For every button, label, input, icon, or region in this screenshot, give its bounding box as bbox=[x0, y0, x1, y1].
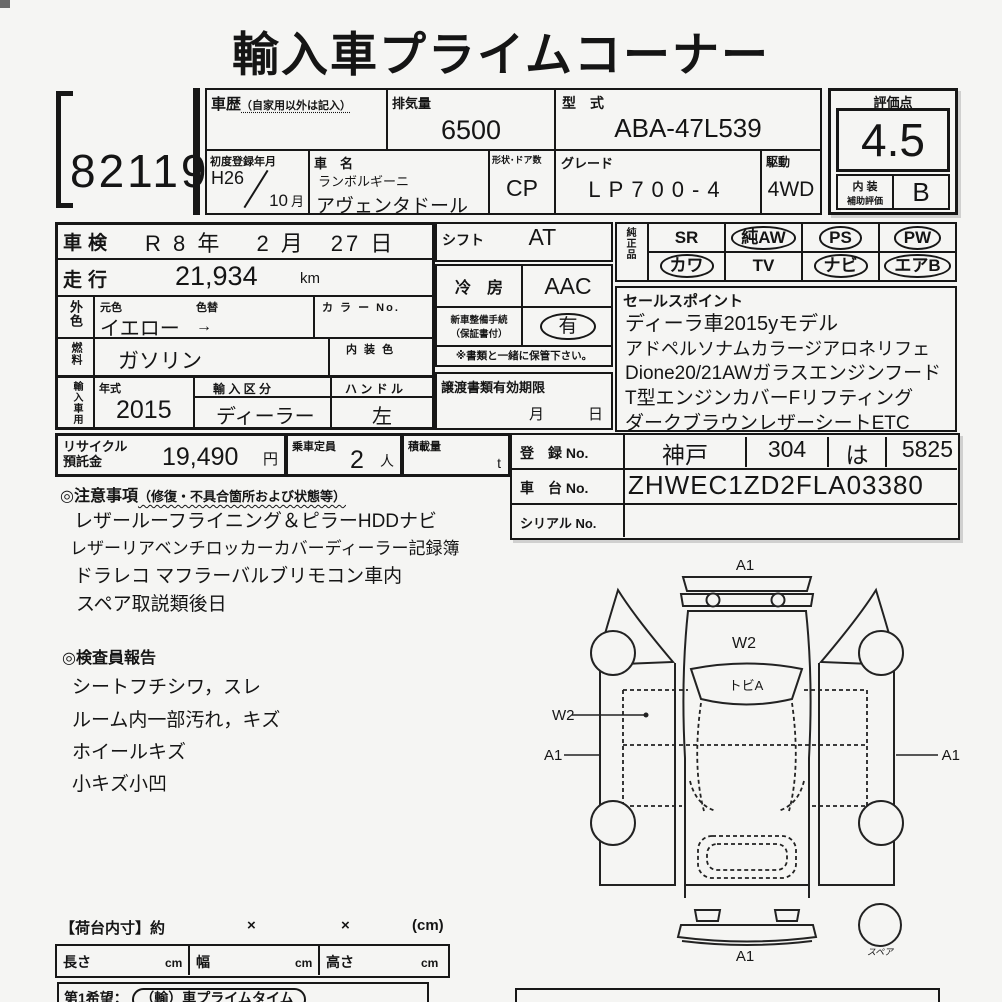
import-label: 輸入車用 bbox=[69, 381, 84, 427]
chassis-no-label: 車 台 No. bbox=[520, 478, 620, 498]
drive-cell: 駆動 4WD bbox=[760, 149, 822, 215]
equip-item: カワ bbox=[649, 252, 724, 280]
ext-color-label: 外色 bbox=[66, 300, 85, 338]
equip-item: PS bbox=[801, 224, 878, 252]
cargo-height-label: 高さ bbox=[326, 952, 354, 972]
sales-points-label: セールスポイント bbox=[623, 290, 955, 311]
diagram-windshield-label: トビA bbox=[729, 678, 764, 693]
fuel-value: ガソリン bbox=[118, 345, 202, 375]
cargo-width-label: 幅 bbox=[196, 952, 210, 972]
history-label: 車歴 bbox=[211, 93, 241, 114]
reg-kana: は bbox=[829, 436, 885, 470]
oem-parts-label: 純正品 bbox=[622, 227, 637, 279]
recycle-unit: 円 bbox=[263, 448, 278, 469]
equip-item: TV bbox=[724, 252, 801, 280]
load-unit: t bbox=[497, 455, 501, 471]
lot-bracket bbox=[56, 91, 61, 208]
shift-box: シフト AT bbox=[435, 222, 613, 262]
load-box: 積載量 t bbox=[401, 433, 511, 477]
reg-no-label: 登 録 No. bbox=[520, 443, 620, 463]
car-name-cell: 車 名 ランボルギーニ アヴェンタドール bbox=[308, 149, 490, 215]
label-underline bbox=[195, 396, 330, 398]
equip-row-2: カワ TV ナビ エアB bbox=[649, 252, 955, 280]
col-divider bbox=[93, 375, 95, 428]
mileage-value: 21,934 bbox=[175, 261, 258, 292]
rating-box: 評価点 4.5 内 装 補助評価 B bbox=[828, 88, 958, 215]
notes-title: ◎注意事項（修復・不具合箇所および状態等） bbox=[60, 482, 346, 506]
cargo-length-unit: cm bbox=[165, 956, 182, 970]
year-label: 年式 bbox=[99, 380, 121, 396]
registration-table: 登 録 No. 神戸 304 は 5825 車 台 No. ZHWEC1ZD2F… bbox=[510, 433, 960, 540]
lot-bracket-bottom-foot bbox=[56, 203, 73, 208]
ac-newcar-block: 冷 房 AAC 新車整備手続 （保証書付） 有 ※書類と一緒に保管下さい。 bbox=[435, 264, 613, 367]
inspector-line: 小キズ小凹 bbox=[72, 769, 167, 796]
lot-number: 82119 bbox=[70, 144, 210, 198]
inspector-line: ホイールキズ bbox=[72, 737, 186, 764]
fuel-label: 燃料 bbox=[68, 342, 84, 376]
note-line: ドラレコ マフラーバルブリモコン車内 bbox=[74, 561, 402, 588]
row-divider bbox=[57, 375, 433, 378]
diagram-left-side-label: A1 bbox=[544, 747, 562, 764]
footer-wish-box: 第1希望： （輸）車プライムタイム bbox=[57, 982, 429, 1002]
cargo-width-unit: cm bbox=[295, 956, 312, 970]
inspector-line: ルーム内一部汚れ，キズ bbox=[72, 705, 280, 732]
mileage-label: 走行 bbox=[63, 265, 113, 292]
newcar-label-box: 新車整備手続 （保証書付） bbox=[437, 308, 523, 345]
transfer-box: 譲渡書類有効期限 月 日 bbox=[435, 372, 613, 430]
transfer-month: 月 bbox=[529, 403, 544, 424]
inspector-line: シートフチシワ，スレ bbox=[72, 672, 261, 699]
newcar-value-box: 有 bbox=[525, 308, 611, 345]
history-cell: 車歴（自家用以外は記入） bbox=[205, 88, 388, 151]
color-change-label: 色替 bbox=[196, 299, 218, 315]
first-reg-cell: 初度登録年月 H26 10 月 bbox=[205, 149, 310, 215]
newcar-value: 有 bbox=[540, 313, 595, 341]
grade-value: LP700-4 bbox=[556, 177, 760, 203]
chassis-no-value: ZHWEC1ZD2FLA03380 bbox=[628, 470, 924, 501]
auction-sheet: 輸入車プライムコーナー 82119 車歴（自家用以外は記入） 排気量 6500 … bbox=[0, 0, 1002, 1002]
shift-label: シフト bbox=[442, 230, 484, 250]
col-divider bbox=[93, 337, 95, 377]
inspector-title: ◎検査員報告 bbox=[62, 644, 156, 668]
interior-color-label: 内 装 色 bbox=[346, 341, 395, 357]
load-label: 積載量 bbox=[408, 438, 508, 454]
keep-with-docs-note: ※書類と一緒に保管下さい。 bbox=[437, 348, 611, 363]
ac-value: AAC bbox=[525, 266, 611, 306]
recycle-box: リサイクル 預託金 19,490 円 bbox=[55, 433, 287, 477]
ac-label: 冷 房 bbox=[437, 266, 523, 306]
row-divider bbox=[57, 295, 433, 297]
sales-point-line: Dione20/21AWガラスエンジンフード bbox=[625, 362, 955, 386]
history-note: （自家用以外は記入） bbox=[241, 100, 351, 112]
grade-label: グレード bbox=[561, 153, 760, 172]
import-type-value: ディーラー bbox=[216, 400, 315, 429]
handle-value: 左 bbox=[372, 400, 392, 429]
drive-label: 駆動 bbox=[766, 153, 820, 170]
grade-cell: グレード LP700-4 bbox=[554, 149, 762, 215]
equip-row-1: SR 純AW PS PW bbox=[649, 224, 955, 252]
label-underline bbox=[332, 396, 433, 398]
footer-right-box bbox=[515, 988, 940, 1002]
newcar-label-1: 新車整備手続 bbox=[437, 312, 521, 326]
lot-bracket-top-foot bbox=[56, 91, 73, 96]
recycle-value: 19,490 bbox=[162, 443, 238, 472]
lot-divider-bar bbox=[193, 88, 200, 215]
sales-point-line: アドペルソナムカラージアロネリフェ bbox=[625, 337, 955, 361]
diagram-left-door-label: W2 bbox=[552, 707, 575, 724]
equip-item: ナビ bbox=[801, 252, 878, 280]
cargo-x1: × bbox=[247, 917, 256, 934]
car-damage-diagram: A1 W2 トビA A1 bbox=[530, 553, 1002, 973]
diagram-spare-label: スペア bbox=[867, 947, 894, 957]
handle-label: ハ ン ド ル bbox=[345, 380, 403, 397]
first-reg-label: 初度登録年月 bbox=[210, 153, 308, 169]
col-divider bbox=[328, 337, 330, 377]
cargo-length-label: 長さ bbox=[63, 952, 91, 972]
displacement-cell: 排気量 6500 bbox=[386, 88, 556, 151]
col-divider bbox=[193, 375, 195, 428]
notes-title-sub: （修復・不具合箇所および状態等） bbox=[138, 489, 346, 504]
model-code-cell: 型 式 ABA-47L539 bbox=[554, 88, 822, 151]
col-divider bbox=[313, 295, 315, 339]
cargo-title: 【荷台内寸】約 bbox=[60, 917, 165, 938]
color-no-label: カ ラ ー No. bbox=[322, 299, 400, 315]
capacity-box: 乗車定員 2 人 bbox=[285, 433, 403, 477]
notes-title-main: ◎注意事項 bbox=[60, 488, 138, 505]
sales-point-line: T型エンジンカバーFリフティング bbox=[625, 387, 955, 411]
footer-wish-value: （輸）車プライムタイム bbox=[132, 988, 305, 1002]
shift-value: AT bbox=[528, 224, 556, 250]
maker-name: ランボルギーニ bbox=[318, 171, 488, 190]
car-name-value: アヴェンタドール bbox=[316, 191, 488, 218]
note-line: レザーリアベンチロッカーカバーディーラー記録簿 bbox=[70, 534, 459, 559]
first-reg-year: H26 bbox=[211, 168, 244, 189]
page-title: 輸入車プライムコーナー bbox=[0, 16, 1002, 85]
interior-label-bottom: 補助評価 bbox=[838, 194, 892, 207]
cargo-table: 長さ cm 幅 cm 高さ cm bbox=[55, 944, 450, 978]
color-arrow: → bbox=[196, 318, 212, 336]
year-value: 2015 bbox=[116, 396, 172, 425]
rating-score: 4.5 bbox=[836, 108, 950, 172]
body-shape-cell: 形状･ドア数 CP bbox=[488, 149, 556, 215]
oem-parts-box: 純正品 SR 純AW PS PW カワ TV ナビ エアB bbox=[615, 222, 957, 282]
model-code-value: ABA-47L539 bbox=[556, 113, 820, 144]
equip-item: PW bbox=[878, 224, 955, 252]
car-name-label: 車 名 bbox=[314, 153, 488, 172]
body-shape-label: 形状･ドア数 bbox=[492, 153, 554, 166]
diagram-hood-label: W2 bbox=[732, 635, 756, 652]
drive-value: 4WD bbox=[762, 178, 820, 202]
col-divider bbox=[188, 946, 190, 975]
equip-item: エアB bbox=[878, 252, 955, 280]
displacement-label: 排気量 bbox=[392, 93, 431, 112]
capacity-unit: 人 bbox=[380, 451, 394, 471]
interior-label-top: 内 装 bbox=[838, 178, 892, 194]
row-divider bbox=[57, 337, 433, 339]
scan-corner-mark bbox=[0, 0, 10, 8]
transfer-label: 譲渡書類有効期限 bbox=[441, 377, 611, 396]
serial-no-label: シリアル No. bbox=[520, 513, 620, 532]
cargo-height-unit: cm bbox=[421, 956, 438, 970]
equip-item: SR bbox=[649, 224, 724, 252]
diagram-front-label: A1 bbox=[736, 557, 754, 574]
diagram-rear-label: A1 bbox=[736, 948, 754, 965]
body-shape-value: CP bbox=[490, 175, 554, 202]
note-line: スペア取説類後日 bbox=[76, 589, 227, 616]
first-reg-month-suffix: 月 bbox=[291, 191, 304, 210]
newcar-label-2: （保証書付） bbox=[437, 326, 521, 340]
diagram-right-side-label: A1 bbox=[942, 747, 960, 764]
shaken-label: 車検 bbox=[63, 228, 113, 255]
row-divider bbox=[57, 258, 433, 260]
transfer-day: 日 bbox=[588, 403, 603, 424]
row-divider bbox=[437, 345, 611, 347]
col-divider bbox=[93, 295, 95, 339]
col-divider bbox=[318, 946, 320, 975]
reg-area: 神戸 bbox=[625, 436, 745, 470]
first-reg-slash bbox=[243, 170, 268, 208]
sales-point-line: ディーラ車2015yモデル bbox=[625, 312, 955, 336]
model-code-label: 型 式 bbox=[562, 93, 604, 113]
interior-rating-label-box: 内 装 補助評価 bbox=[836, 174, 894, 210]
import-type-label: 輸 入 区 分 bbox=[213, 380, 271, 397]
reg-number: 5825 bbox=[887, 436, 953, 463]
note-line: レザールーフライニング＆ピラーHDDナビ bbox=[74, 506, 437, 533]
reg-class: 304 bbox=[747, 436, 827, 463]
displacement-value: 6500 bbox=[388, 115, 554, 146]
first-reg-month: 10 bbox=[269, 191, 288, 211]
capacity-value: 2 bbox=[350, 446, 364, 475]
cargo-x2: × bbox=[341, 917, 350, 934]
row-divider bbox=[512, 503, 957, 505]
cargo-unit: (cm) bbox=[412, 917, 444, 934]
shaken-value: R 8 年 2 月 27 日 bbox=[145, 226, 395, 258]
footer-wish-prefix: 第1希望： bbox=[64, 988, 128, 1002]
col-divider bbox=[330, 375, 332, 428]
equip-item: 純AW bbox=[724, 224, 801, 252]
interior-grade: B bbox=[892, 174, 950, 210]
sales-points-box: セールスポイント ディーラ車2015yモデル アドペルソナムカラージアロネリフェ… bbox=[615, 286, 957, 432]
mileage-unit: km bbox=[300, 270, 320, 287]
